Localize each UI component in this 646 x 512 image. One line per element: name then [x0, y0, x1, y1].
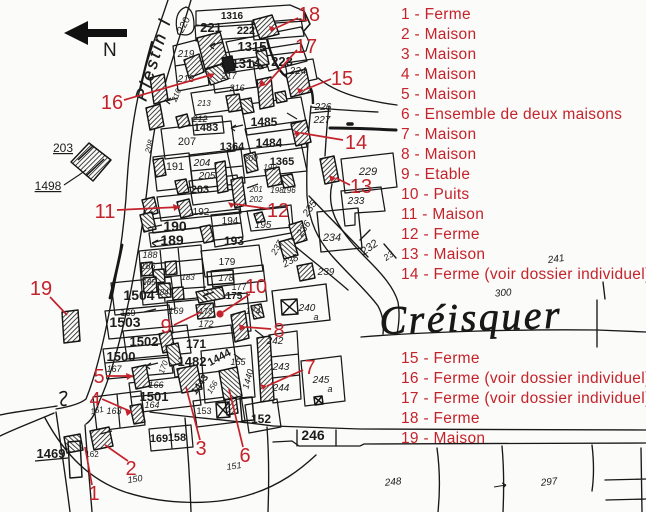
svg-text:1: 1: [88, 483, 99, 505]
svg-text:204: 204: [193, 158, 211, 169]
svg-text:246: 246: [301, 427, 325, 443]
svg-text:221: 221: [200, 20, 222, 35]
svg-text:203: 203: [191, 184, 209, 196]
svg-text:200: 200: [243, 154, 258, 163]
svg-text:193: 193: [224, 234, 244, 248]
svg-text:19 - Maison: 19 - Maison: [401, 430, 485, 447]
svg-text:8: 8: [273, 320, 284, 342]
svg-text:234: 234: [322, 232, 341, 244]
svg-text:19: 19: [30, 278, 52, 300]
svg-text:11 - Maison: 11 - Maison: [401, 206, 484, 223]
svg-text:10 - Puits: 10 - Puits: [401, 186, 469, 203]
svg-text:183: 183: [181, 273, 195, 282]
svg-text:13: 13: [350, 176, 372, 198]
svg-text:1364: 1364: [220, 141, 245, 153]
svg-text:2 - Maison: 2 - Maison: [401, 26, 476, 43]
svg-text:16 - Ferme (voir dossier indiv: 16 - Ferme (voir dossier individuel): [401, 370, 646, 387]
svg-text:191: 191: [166, 161, 184, 173]
svg-text:169: 169: [168, 306, 183, 316]
svg-text:8 - Maison: 8 - Maison: [401, 146, 476, 163]
svg-text:199: 199: [263, 163, 277, 172]
svg-text:171: 171: [186, 337, 206, 351]
svg-text:1498: 1498: [35, 179, 62, 193]
svg-text:172: 172: [198, 319, 213, 329]
svg-text:166: 166: [148, 380, 163, 390]
svg-text:155: 155: [230, 357, 246, 367]
svg-text:192: 192: [193, 207, 210, 218]
svg-text:188: 188: [142, 250, 157, 260]
svg-text:5 - Maison: 5 - Maison: [401, 86, 476, 103]
svg-text:196: 196: [282, 186, 296, 195]
svg-text:16: 16: [101, 92, 123, 114]
svg-text:243: 243: [272, 362, 290, 373]
svg-text:1483: 1483: [194, 122, 218, 134]
svg-text:7 - Maison: 7 - Maison: [401, 126, 476, 143]
svg-text:297: 297: [539, 476, 558, 489]
svg-text:202: 202: [248, 195, 263, 204]
svg-text:1315: 1315: [238, 39, 267, 54]
svg-text:205: 205: [198, 171, 216, 182]
svg-text:167: 167: [106, 364, 122, 374]
svg-text:1500: 1500: [107, 349, 136, 364]
svg-text:213: 213: [196, 99, 211, 108]
svg-text:12: 12: [267, 200, 289, 222]
svg-text:169: 169: [150, 433, 168, 445]
svg-text:a: a: [313, 312, 318, 322]
svg-text:15: 15: [331, 68, 353, 90]
svg-text:9 - Etable: 9 - Etable: [401, 166, 470, 183]
svg-text:174: 174: [245, 306, 260, 316]
svg-text:1485: 1485: [251, 115, 278, 129]
svg-text:14 - Ferme (voir dossier indiv: 14 - Ferme (voir dossier individuel): [401, 266, 646, 283]
svg-text:153: 153: [196, 406, 211, 416]
svg-text:5: 5: [93, 366, 104, 388]
svg-text:194: 194: [222, 216, 239, 227]
svg-text:239: 239: [317, 267, 335, 278]
svg-text:216: 216: [228, 83, 244, 93]
svg-text:14: 14: [345, 132, 367, 154]
svg-text:3 - Maison: 3 - Maison: [401, 46, 476, 63]
svg-text:13 - Maison: 13 - Maison: [401, 246, 485, 263]
svg-text:12 - Ferme: 12 - Ferme: [401, 226, 480, 243]
svg-text:3: 3: [195, 438, 206, 460]
svg-text:179: 179: [219, 257, 236, 268]
svg-text:6: 6: [239, 445, 250, 467]
svg-text:173: 173: [199, 307, 213, 316]
svg-text:6 - Ensemble de deux maisons: 6 - Ensemble de deux maisons: [401, 106, 622, 123]
svg-text:1316: 1316: [221, 11, 244, 22]
svg-text:185: 185: [142, 278, 156, 287]
svg-text:17: 17: [295, 36, 317, 58]
svg-text:219: 219: [177, 49, 195, 60]
svg-text:N: N: [103, 40, 117, 61]
svg-text:a: a: [327, 384, 332, 394]
svg-text:164: 164: [144, 400, 159, 410]
svg-text:184: 184: [155, 288, 169, 297]
svg-text:169: 169: [120, 308, 135, 318]
svg-text:203: 203: [53, 141, 73, 155]
svg-text:244: 244: [272, 383, 290, 394]
svg-text:152: 152: [251, 412, 271, 426]
svg-text:1469: 1469: [37, 446, 66, 461]
svg-text:18: 18: [298, 4, 320, 26]
svg-text:217: 217: [220, 71, 237, 81]
svg-text:163: 163: [106, 406, 121, 416]
svg-text:158: 158: [168, 432, 186, 444]
svg-text:9: 9: [160, 316, 171, 338]
svg-text:222: 222: [237, 25, 255, 37]
svg-text:4 - Maison: 4 - Maison: [401, 66, 476, 83]
svg-text:248: 248: [383, 476, 402, 489]
svg-text:17 - Ferme (voir dossier indiv: 17 - Ferme (voir dossier individuel): [401, 390, 646, 407]
svg-text:224: 224: [289, 66, 307, 77]
svg-text:1484: 1484: [256, 136, 283, 150]
svg-text:1502: 1502: [130, 334, 159, 349]
svg-text:1504: 1504: [123, 287, 154, 303]
svg-text:227: 227: [313, 115, 331, 126]
svg-text:Créisquer: Créisquer: [379, 292, 563, 343]
svg-text:186: 186: [140, 261, 155, 271]
svg-text:18 - Ferme: 18 - Ferme: [401, 410, 480, 427]
svg-text:7: 7: [304, 357, 315, 379]
svg-text:1482: 1482: [178, 354, 207, 369]
svg-text:4: 4: [89, 389, 100, 411]
svg-text:207: 207: [178, 136, 196, 148]
svg-text:11: 11: [95, 201, 116, 223]
svg-text:226: 226: [314, 102, 332, 113]
svg-text:1 - Ferme: 1 - Ferme: [401, 6, 471, 23]
svg-text:15 - Ferme: 15 - Ferme: [401, 350, 480, 367]
